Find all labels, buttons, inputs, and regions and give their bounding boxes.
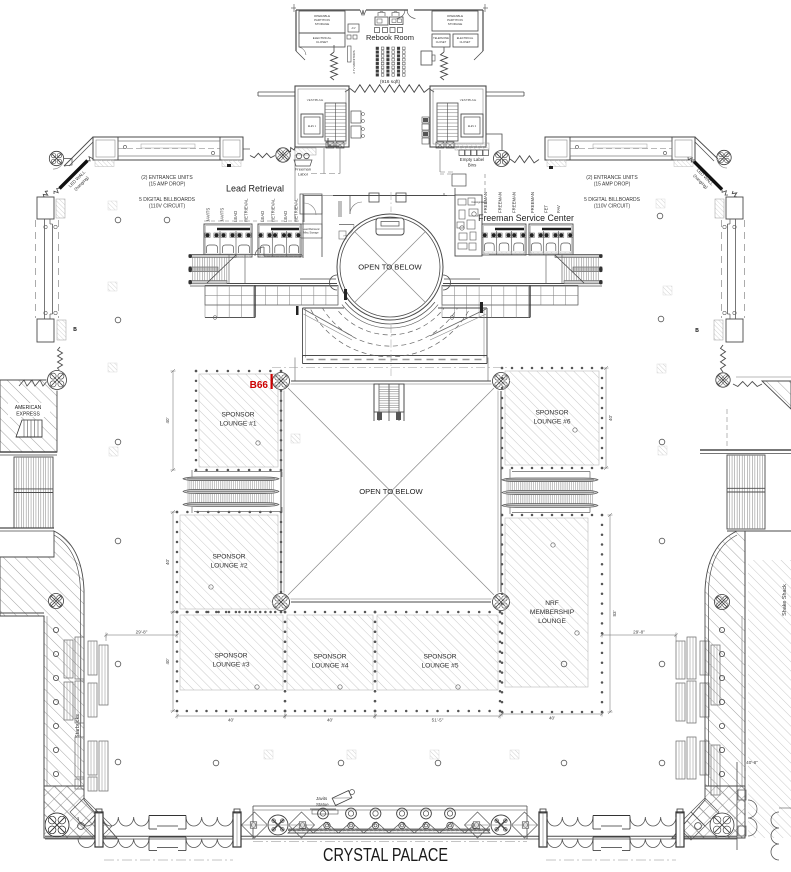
svg-text:51'-5": 51'-5" [432,718,444,723]
svg-text:SPONSOR: SPONSOR [215,653,248,660]
svg-text:JAVITS: JAVITS [206,208,211,222]
svg-text:LOUNGE #4: LOUNGE #4 [311,663,348,670]
svg-text:CRYSTAL PALACE: CRYSTAL PALACE [323,844,448,865]
svg-text:ELECTRICAL: ELECTRICAL [457,36,474,40]
svg-text:LEAD: LEAD [260,211,265,222]
svg-text:2 TV MONITORS: 2 TV MONITORS [352,50,356,73]
svg-text:B: B [73,327,77,333]
svg-text:40': 40' [327,718,333,723]
svg-text:STORAGE: STORAGE [448,22,463,26]
svg-text:Lead Retrieval: Lead Retrieval [226,184,284,194]
svg-text:83': 83' [612,610,617,616]
svg-text:A/V: A/V [351,27,355,30]
svg-text:(110V CIRCUIT): (110V CIRCUIT) [149,204,186,210]
svg-text:SPONSOR: SPONSOR [536,410,569,417]
svg-text:Lead Retrieval: Lead Retrieval [303,227,320,231]
svg-text:Bins: Bins [468,163,477,168]
svg-text:LOUNGE #6: LOUNGE #6 [533,419,570,426]
svg-text:VESTIBULE: VESTIBULE [460,98,477,102]
svg-text:5 DIGITAL BILLBOARDS: 5 DIGITAL BILLBOARDS [584,197,641,203]
svg-text:40': 40' [165,658,170,664]
svg-text:OPEN TO BELOW: OPEN TO BELOW [359,487,423,496]
svg-text:RETRIEVAL: RETRIEVAL [244,198,249,222]
svg-text:B66: B66 [250,380,269,391]
svg-text:FREEMAN: FREEMAN [512,192,517,213]
svg-text:LEAD: LEAD [283,211,288,222]
svg-text:40': 40' [165,559,170,565]
svg-text:Javits: Javits [316,796,328,801]
svg-text:B: B [695,328,699,334]
svg-text:EXPRESS: EXPRESS [16,412,40,418]
svg-text:SPONSOR: SPONSOR [424,654,457,661]
svg-text:CLOSET: CLOSET [316,40,328,44]
svg-text:LEAD: LEAD [233,211,238,222]
svg-text:OPEN TO BELOW: OPEN TO BELOW [358,263,422,272]
svg-text:LOUNGE #1: LOUNGE #1 [219,421,256,428]
svg-text:Consignment: Consignment [471,200,487,204]
svg-text:40'-8": 40'-8" [746,760,758,765]
svg-text:Rebook Room: Rebook Room [366,33,414,42]
svg-text:29'-8": 29'-8" [136,630,148,635]
svg-text:FAV: FAV [556,205,561,213]
svg-text:5 DIGITAL BILLBOARDS: 5 DIGITAL BILLBOARDS [139,197,196,203]
svg-text:Shake Shack: Shake Shack [782,584,788,616]
svg-text:VESTIBULE: VESTIBULE [307,98,324,102]
svg-text:(110V CIRCUIT): (110V CIRCUIT) [594,204,631,210]
svg-text:LOUNGE #2: LOUNGE #2 [210,563,247,570]
svg-text:MEMBERSHIP: MEMBERSHIP [530,609,575,616]
svg-text:(2) ENTRANCE UNITS: (2) ENTRANCE UNITS [586,175,638,181]
svg-text:FREEMAN: FREEMAN [530,192,535,213]
svg-text:Misc Storage: Misc Storage [303,231,319,235]
svg-text:ELEV 1: ELEV 1 [308,125,317,128]
svg-text:CLOSET: CLOSET [436,40,447,44]
svg-text:RETRIEVAL: RETRIEVAL [271,198,276,222]
svg-text:LOUNGE #5: LOUNGE #5 [421,663,458,670]
svg-text:SPONSOR: SPONSOR [314,654,347,661]
svg-text:Empty Label: Empty Label [460,157,484,162]
svg-text:Labor: Labor [298,172,309,177]
svg-text:FREEMAN: FREEMAN [498,192,503,213]
svg-text:TELEPHONE: TELEPHONE [433,36,449,40]
svg-text:RETRIEVAL: RETRIEVAL [294,198,299,222]
svg-text:Freeman Service Center: Freeman Service Center [478,213,574,223]
svg-text:40': 40' [165,417,170,423]
svg-text:FET: FET [544,205,549,213]
svg-text:(15 AMP DROP): (15 AMP DROP) [149,182,186,188]
svg-text:STORAGE: STORAGE [315,22,330,26]
svg-text:CLOSET: CLOSET [460,40,471,44]
svg-text:(2) ENTRANCE UNITS: (2) ENTRANCE UNITS [141,175,193,181]
svg-text:SPONSOR: SPONSOR [213,554,246,561]
svg-text:JAVITS: JAVITS [220,208,225,222]
svg-text:AMERICAN: AMERICAN [15,405,42,411]
svg-text:ELEV 2: ELEV 2 [468,125,477,128]
svg-text:NRF: NRF [545,600,559,607]
svg-text:40': 40' [608,415,613,421]
svg-text:40': 40' [228,718,234,723]
svg-text:(916 sqft): (916 sqft) [380,79,401,85]
svg-text:40': 40' [549,716,555,721]
svg-text:29'-8": 29'-8" [633,630,645,635]
svg-text:LOUNGE: LOUNGE [538,618,566,625]
svg-text:SPONSOR: SPONSOR [222,412,255,419]
svg-text:(15 AMP DROP): (15 AMP DROP) [594,182,631,188]
svg-text:LOUNGE #3: LOUNGE #3 [212,662,249,669]
svg-text:Statue: Statue [316,802,329,807]
